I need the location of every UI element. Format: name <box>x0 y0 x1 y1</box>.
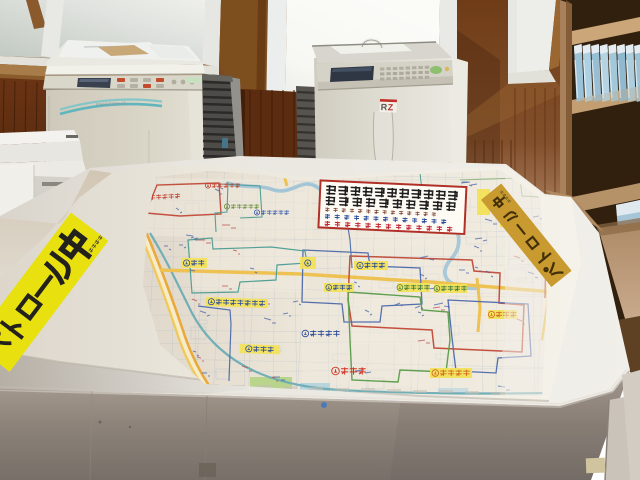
svg-text:Z: Z <box>388 102 394 112</box>
